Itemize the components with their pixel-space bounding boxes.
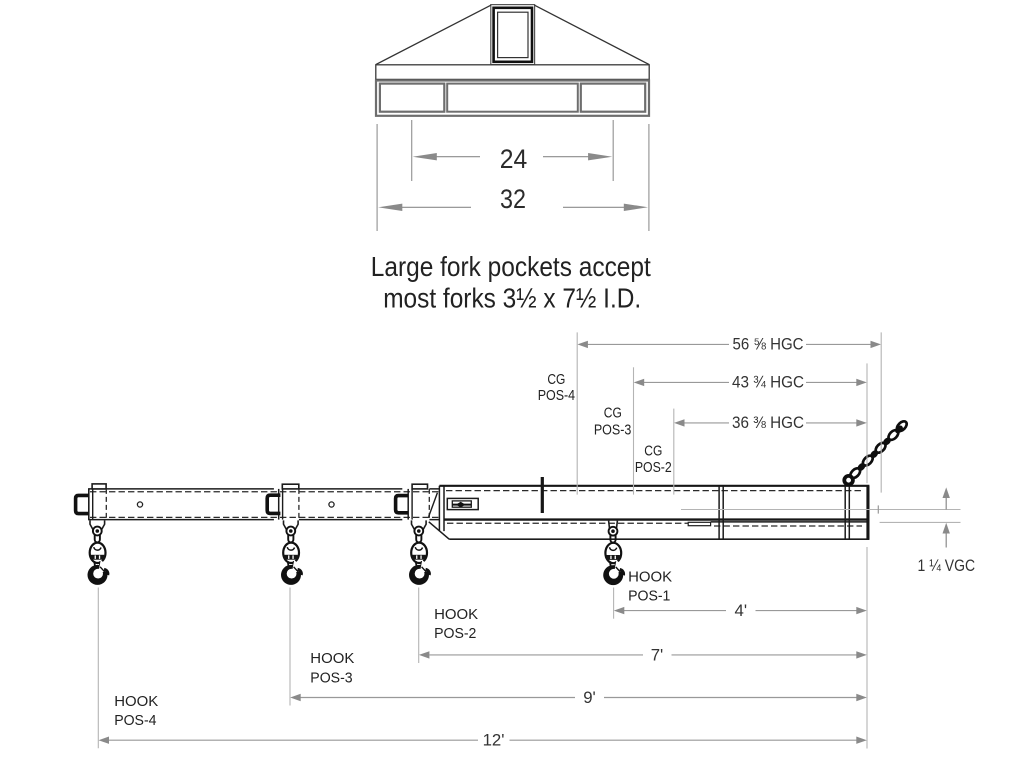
svg-text:4': 4' bbox=[735, 601, 748, 620]
svg-text:12': 12' bbox=[483, 731, 505, 750]
svg-text:HOOK: HOOK bbox=[434, 606, 478, 623]
svg-text:POS-3: POS-3 bbox=[594, 422, 632, 439]
svg-text:POS-1: POS-1 bbox=[628, 588, 670, 605]
svg-text:24: 24 bbox=[500, 144, 528, 174]
svg-text:HOOK: HOOK bbox=[628, 568, 672, 585]
svg-text:HOOK: HOOK bbox=[310, 650, 354, 667]
svg-text:7': 7' bbox=[651, 645, 664, 664]
svg-text:CG: CG bbox=[547, 371, 565, 388]
svg-text:9': 9' bbox=[583, 688, 596, 707]
svg-text:HOOK: HOOK bbox=[114, 693, 158, 710]
svg-text:POS-4: POS-4 bbox=[538, 387, 575, 404]
svg-text:most forks 3½ x 7½ I.D.: most forks 3½ x 7½ I.D. bbox=[383, 282, 641, 313]
svg-text:36 ⅜ HGC: 36 ⅜ HGC bbox=[732, 413, 804, 432]
svg-text:POS-2: POS-2 bbox=[434, 625, 476, 642]
svg-text:32: 32 bbox=[500, 184, 526, 214]
svg-text:56 ⅝ HGC: 56 ⅝ HGC bbox=[733, 335, 804, 354]
svg-text:1 ¼ VGC: 1 ¼ VGC bbox=[918, 556, 976, 575]
svg-text:POS-2: POS-2 bbox=[635, 459, 672, 476]
svg-text:POS-3: POS-3 bbox=[310, 669, 352, 686]
svg-text:CG: CG bbox=[604, 405, 622, 422]
svg-text:CG: CG bbox=[644, 443, 662, 460]
svg-text:POS-4: POS-4 bbox=[114, 712, 156, 729]
svg-text:Large fork pockets accept: Large fork pockets accept bbox=[371, 251, 651, 282]
svg-text:43 ¾ HGC: 43 ¾ HGC bbox=[732, 373, 804, 392]
